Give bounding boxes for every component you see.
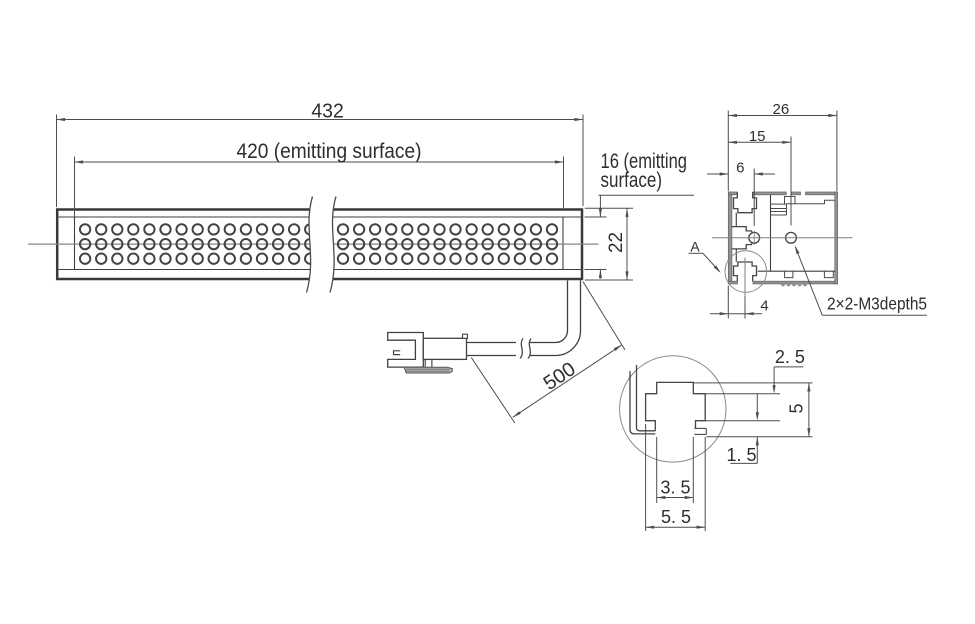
svg-text:420 (emitting surface): 420 (emitting surface) xyxy=(237,140,422,163)
svg-text:2. 5: 2. 5 xyxy=(775,347,805,367)
svg-text:3. 5: 3. 5 xyxy=(660,477,690,497)
svg-text:1. 5: 1. 5 xyxy=(726,445,756,465)
svg-text:surface): surface) xyxy=(601,169,663,192)
svg-text:4: 4 xyxy=(760,297,768,314)
svg-text:6: 6 xyxy=(736,159,744,176)
svg-text:2×2-M3depth5: 2×2-M3depth5 xyxy=(827,294,927,314)
svg-text:5: 5 xyxy=(787,403,807,413)
svg-text:432: 432 xyxy=(311,100,344,123)
svg-text:A: A xyxy=(690,239,700,255)
svg-text:22: 22 xyxy=(606,232,627,253)
svg-text:5. 5: 5. 5 xyxy=(661,507,691,527)
svg-text:26: 26 xyxy=(773,101,790,118)
svg-text:15: 15 xyxy=(749,128,766,145)
